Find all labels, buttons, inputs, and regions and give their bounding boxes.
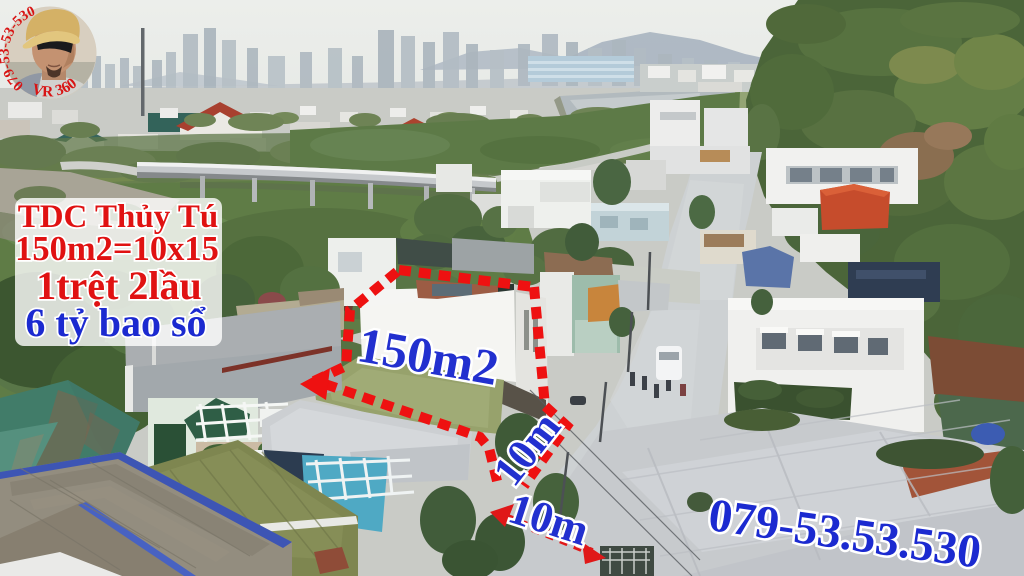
svg-text:6 tỷ bao sổ: 6 tỷ bao sổ xyxy=(25,300,206,345)
